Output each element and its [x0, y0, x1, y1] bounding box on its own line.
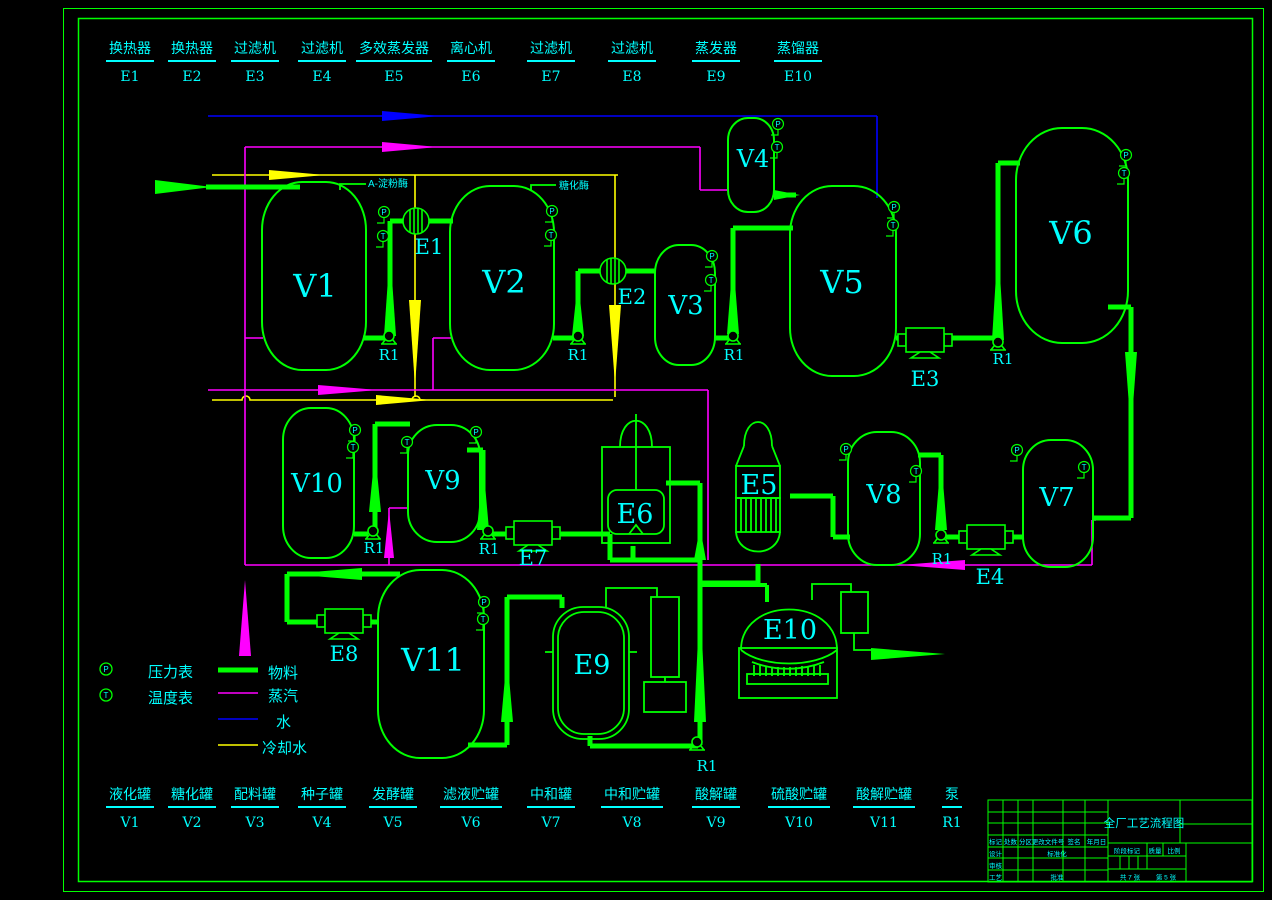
drawing-border — [64, 9, 1264, 892]
vessel-label-v11: V11 — [400, 641, 465, 679]
equipment-list-bottom-item: 硫酸贮罐V10 — [768, 784, 830, 831]
equipment-list-top-item: 蒸馏器E10 — [774, 38, 822, 85]
equipment-list-top-item: 过滤机E7 — [527, 38, 575, 85]
tb-weight: 质量 — [1149, 846, 1163, 855]
pump-label: R1 — [697, 757, 718, 775]
legend-water-label: 水 — [276, 711, 291, 732]
tb-scale: 比例 — [1168, 846, 1181, 855]
pump-label: R1 — [364, 539, 385, 557]
unit-e8-filter — [317, 609, 371, 639]
equipment-list-bottom-item: 中和罐V7 — [527, 784, 575, 831]
tb-process: 工艺 — [989, 874, 1003, 882]
tb-header-date: 年月日 — [1087, 837, 1107, 846]
pump-label: R1 — [479, 540, 500, 558]
equipment-list-bottom-item: 酸解罐V9 — [692, 784, 740, 831]
tb-stage-mark: 阶段标记 — [1114, 846, 1141, 855]
unit-e9-evaporator — [545, 597, 686, 739]
equipment-list-top-item: 多效蒸发器E5 — [356, 38, 432, 85]
equipment-list-bottom-item: 糖化罐V2 — [168, 784, 216, 831]
water-flow-arrow — [382, 111, 440, 121]
unit-label-e10: E10 — [763, 615, 817, 646]
unit-label-e8: E8 — [330, 642, 359, 666]
unit-label-e1: E1 — [415, 235, 444, 259]
equipment-list-top-item: 蒸发器E9 — [692, 38, 740, 85]
tb-review: 审核 — [989, 861, 1003, 870]
unit-e3-filter — [898, 328, 952, 358]
unit-label-e9: E9 — [574, 650, 611, 681]
pump-label: R1 — [724, 346, 745, 364]
unit-e2-heat-exchanger — [600, 258, 626, 284]
vessel-label-v3: V3 — [667, 291, 703, 321]
equipment-list-bottom-item: 滤液贮罐V6 — [440, 784, 502, 831]
pump-label: R1 — [993, 350, 1014, 368]
pipe-to-distiller — [700, 585, 767, 602]
unit-e1-heat-exchanger — [403, 208, 429, 234]
equipment-list-top-item: 换热器E1 — [106, 38, 154, 85]
equipment-list-bottom-item: 发酵罐V5 — [369, 784, 417, 831]
svg-text:T: T — [104, 691, 109, 700]
material-flow-arrows — [155, 180, 1137, 722]
tb-standardize: 标准化 — [1047, 849, 1067, 858]
process-flow-diagram: P T — [0, 0, 1272, 900]
title-block: 标记 处数 分区 更改文件号 签名 年月日 设计 标准化 审核 工艺 批准 阶段… — [988, 800, 1252, 882]
equipment-list-bottom-item: 酸解贮罐V11 — [853, 784, 915, 831]
tb-header-count: 处数 — [1004, 837, 1018, 846]
equipment-list-top-item: 过滤机E8 — [608, 38, 656, 85]
unit-label-e3: E3 — [911, 367, 940, 391]
unit-label-e5: E5 — [741, 470, 778, 501]
pump-label: R1 — [379, 346, 400, 364]
legend-steam-label: 蒸汽 — [268, 685, 298, 706]
vessel-label-v4: V4 — [736, 145, 770, 173]
pump-label: R1 — [568, 346, 589, 364]
legend-cooling-water-label: 冷却水 — [262, 737, 307, 758]
tb-header-zone: 分区 — [1019, 837, 1033, 846]
drawing-title: 全厂工艺流程图 — [1104, 816, 1185, 830]
tb-sheets-total: 共 7 张 — [1120, 873, 1141, 882]
legend-material-label: 物料 — [268, 662, 298, 683]
diagram-labels: V1 V2 V3 V4 V5 V6 V7 V8 V9 V10 V11 E1 E2… — [290, 145, 1093, 775]
annotation-glucoamylase: 糖化酶 — [559, 179, 589, 192]
pump-label: R1 — [932, 550, 953, 568]
annotation-alpha-amylase: Α-淀粉酶 — [368, 177, 408, 190]
svg-text:P: P — [103, 665, 108, 674]
steam-flow-arrows — [239, 142, 965, 656]
equipment-list-bottom-item: 配料罐V3 — [231, 784, 279, 831]
cad-process-flow-sheet: P T — [0, 0, 1272, 900]
vessel-label-v5: V5 — [819, 263, 863, 301]
equipment-list-bottom-item: 种子罐V4 — [298, 784, 346, 831]
vessel-label-v10: V10 — [290, 469, 343, 499]
equipment-list-top-item: 换热器E2 — [168, 38, 216, 85]
tb-approve: 批准 — [1051, 873, 1065, 882]
unit-label-e6: E6 — [617, 499, 654, 530]
equipment-list-bottom-item: 液化罐V1 — [106, 784, 154, 831]
tb-design: 设计 — [989, 849, 1003, 858]
unit-label-e4: E4 — [976, 565, 1005, 589]
vessel-label-v2: V2 — [481, 263, 525, 301]
instrument-gauges — [346, 119, 1132, 631]
unit-e4-filter — [959, 525, 1013, 555]
equipment-list-top-item: 离心机E6 — [447, 38, 495, 85]
vessel-label-v9: V9 — [424, 466, 460, 496]
vessel-label-v7: V7 — [1038, 483, 1074, 513]
legend-temperature-gauge-label: 温度表 — [148, 687, 193, 708]
unit-label-e7: E7 — [519, 546, 548, 570]
equipment-list-top-item: 过滤机E3 — [231, 38, 279, 85]
vessel-label-v6: V6 — [1048, 214, 1092, 252]
tb-header-sign: 签名 — [1068, 837, 1081, 846]
tb-sheet-no: 第 5 张 — [1156, 873, 1177, 882]
tb-header-mark: 标记 — [989, 837, 1003, 846]
tb-header-docno: 更改文件号 — [1032, 837, 1065, 846]
equipment-list-bottom-item: 泵R1 — [942, 784, 962, 831]
equipment-list-bottom-item: 中和贮罐V8 — [601, 784, 663, 831]
unit-label-e2: E2 — [618, 285, 647, 309]
vessel-label-v1: V1 — [292, 267, 336, 305]
equipment-list-top-item: 过滤机E4 — [298, 38, 346, 85]
legend-pressure-gauge-label: 压力表 — [148, 661, 193, 682]
vessel-label-v8: V8 — [865, 480, 901, 510]
